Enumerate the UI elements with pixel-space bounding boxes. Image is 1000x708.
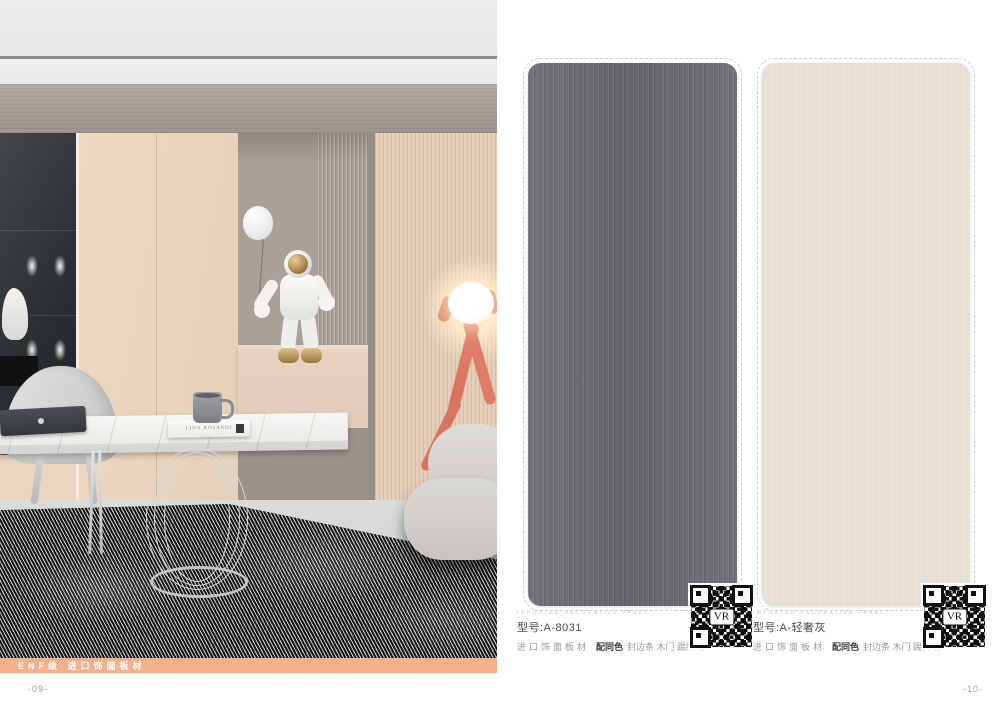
cabinet-shelf xyxy=(0,230,76,231)
qr-finder xyxy=(965,585,986,606)
wood-beam xyxy=(0,84,497,135)
desc-panel-type: 进口饰面板材 xyxy=(753,642,825,652)
page-number-right: -10- xyxy=(963,684,983,694)
swatch-label-block: IMPORTED DECORATIVE PANEL 型号:A-8031 进口饰面… xyxy=(517,610,692,653)
stitch-border xyxy=(757,58,975,611)
swatch-description: 进口饰面板材配同色封边条 木门 踢脚线 xyxy=(753,640,928,653)
category-banner: ENF级 进口饰面板材 xyxy=(0,658,497,673)
desc-match-color: 配同色 xyxy=(832,642,859,652)
qr-finder xyxy=(690,627,711,648)
astronaut-visor xyxy=(288,254,308,274)
swatch-eyebrow: IMPORTED DECORATIVE PANEL xyxy=(517,610,692,616)
ceiling-cove xyxy=(0,59,497,84)
spotlight-glow xyxy=(54,255,66,277)
astronaut-figurine xyxy=(254,250,334,370)
astronaut-boot xyxy=(301,348,322,363)
swatch-model: 型号:A-8031 xyxy=(517,619,692,635)
ceiling xyxy=(0,0,497,56)
interior-photo: LINA ROSARDI xyxy=(0,0,497,658)
vr-qr-code: VR xyxy=(921,583,988,650)
banner-label: ENF级 进口饰面板材 xyxy=(0,659,146,672)
spotlight-glow xyxy=(54,339,66,361)
spotlight-glow xyxy=(26,255,38,277)
page-number-left: -09- xyxy=(28,684,48,694)
vr-qr-code: VR xyxy=(688,583,755,650)
book-label xyxy=(236,424,244,433)
astronaut-glove xyxy=(254,302,270,318)
mug xyxy=(193,392,222,423)
qr-vr-label: VR xyxy=(709,608,734,625)
swatch-page: IMPORTED DECORATIVE PANEL 型号:A-8031 进口饰面… xyxy=(497,0,1000,708)
sofa-seat xyxy=(404,478,497,560)
ribbed-panel-edge xyxy=(368,133,375,505)
mug-handle xyxy=(219,399,234,419)
swatch-model: 型号:A-轻奢灰 xyxy=(753,619,928,635)
astronaut-glove xyxy=(318,294,335,311)
qr-finder xyxy=(690,585,711,606)
qr-vr-label: VR xyxy=(942,608,967,625)
astronaut-body xyxy=(280,274,318,320)
swatch-eyebrow: IMPORTED DECORATIVE PANEL xyxy=(753,610,928,616)
wire-desk-base xyxy=(146,448,248,594)
qr-finder xyxy=(923,585,944,606)
swatch-card-A-light-gray xyxy=(762,63,970,606)
astronaut-boot xyxy=(278,348,299,363)
qr-finder xyxy=(732,585,753,606)
swatch-description: 进口饰面板材配同色封边条 木门 踢脚线 xyxy=(517,640,692,653)
lamp-light-head xyxy=(448,282,494,324)
desc-panel-type: 进口饰面板材 xyxy=(517,642,589,652)
swatch-card-A-8031 xyxy=(528,63,737,606)
desc-match-color: 配同色 xyxy=(596,642,623,652)
balloon xyxy=(243,206,273,240)
swatch-label-block: IMPORTED DECORATIVE PANEL 型号:A-轻奢灰 进口饰面板… xyxy=(753,610,928,653)
stitch-border xyxy=(523,58,742,611)
book-title: LINA ROSARDI xyxy=(186,426,233,432)
qr-finder xyxy=(923,627,944,648)
laptop-logo xyxy=(38,418,44,424)
